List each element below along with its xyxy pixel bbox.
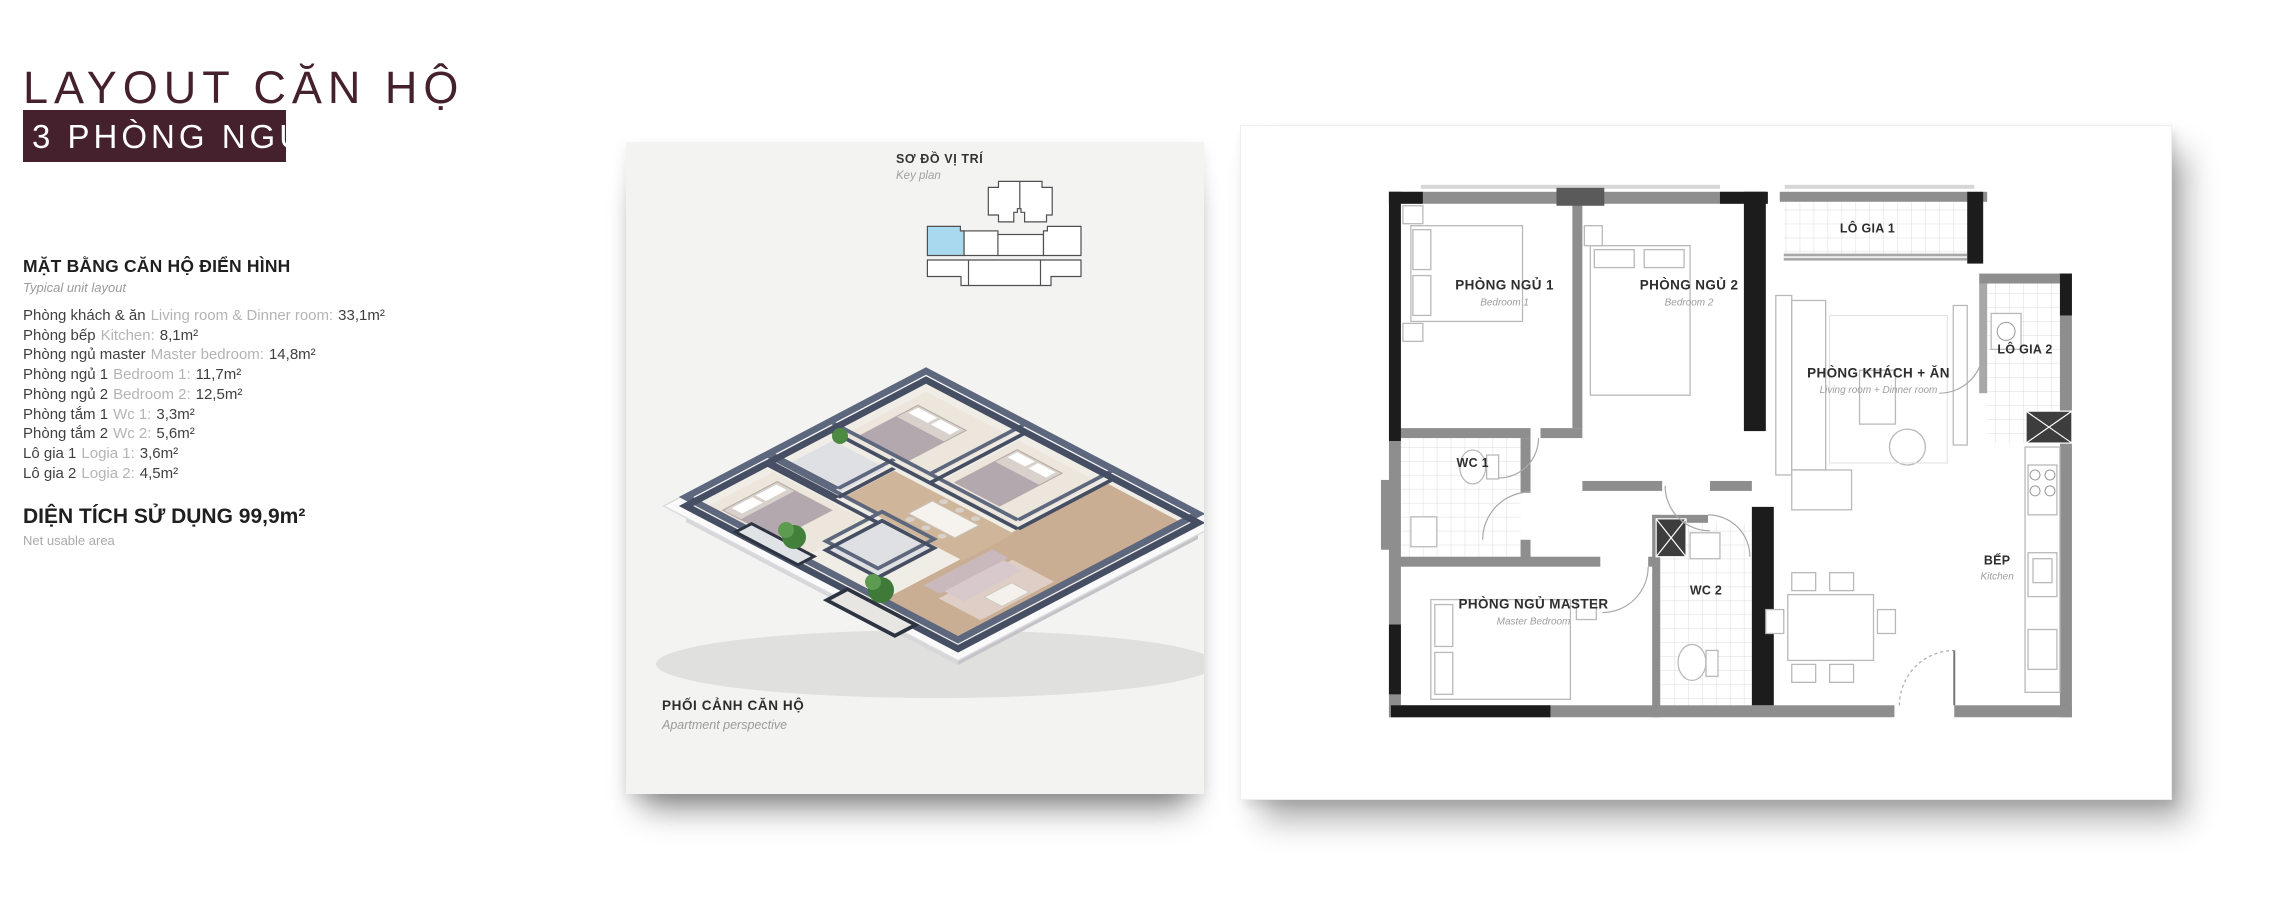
room-area-list: Phòng khách & ănLiving room & Dinner roo… (23, 306, 385, 483)
label-logia1: LÔ GIA 1 (1840, 221, 1895, 236)
room-name-en: Kitchen: (101, 327, 155, 344)
room-name-vi: Lô gia 2 (23, 465, 76, 482)
list-item: Phòng tắm 1Wc 1:3,3m² (23, 405, 385, 425)
list-item: Phòng ngủ masterMaster bedroom:14,8m² (23, 345, 385, 365)
room-name-en: Logia 2: (81, 465, 134, 482)
keyplan-diagram (922, 170, 1102, 302)
room-name-en: Bedroom 1: (113, 366, 191, 383)
room-name-vi: Phòng ngủ 1 (23, 366, 108, 383)
label-living: PHÒNG KHÁCH + ĂN (1807, 365, 1950, 380)
room-area-value: 12,5m² (196, 386, 243, 403)
room-name-vi: Phòng ngủ 2 (23, 386, 108, 403)
room-name-vi: Phòng tắm 1 (23, 406, 108, 423)
list-item: Lô gia 2Logia 2:4,5m² (23, 464, 385, 484)
perspective-caption-subtitle: Apartment perspective (662, 718, 787, 732)
room-name-en: Bedroom 2: (113, 386, 191, 403)
list-item: Lô gia 1Logia 1:3,6m² (23, 444, 385, 464)
room-area-value: 3,3m² (156, 406, 194, 423)
page: LAYOUT CĂN HỘ 3 PHÒNG NGỦ MẶT BẰNG CĂN H… (0, 0, 2279, 900)
total-area-label: DIỆN TÍCH SỬ DỤNG (23, 505, 233, 528)
section-subheading: Typical unit layout (23, 280, 126, 295)
floorplan-panel: PHÒNG NGỦ 1 Bedroom 1 PHÒNG NGỦ 2 Bedroo… (1240, 125, 2172, 800)
room-area-value: 3,6m² (140, 445, 178, 462)
room-name-en: Master bedroom: (151, 346, 264, 363)
room-name-vi: Phòng tắm 2 (23, 425, 108, 442)
keyplan-title: SƠ ĐỒ VỊ TRÍ (896, 152, 983, 166)
room-name-en: Logia 1: (81, 445, 134, 462)
room-area-value: 14,8m² (269, 346, 316, 363)
room-area-value: 11,7m² (196, 366, 242, 383)
list-item: Phòng ngủ 2Bedroom 2:12,5m² (23, 385, 385, 405)
room-name-vi: Phòng bếp (23, 327, 96, 344)
total-area-subtitle: Net usable area (23, 533, 115, 548)
room-name-en: Living room & Dinner room: (151, 307, 334, 324)
list-item: Phòng ngủ 1Bedroom 1:11,7m² (23, 365, 385, 385)
perspective-card: SƠ ĐỒ VỊ TRÍ Key plan PHỐI CẢNH CĂN HỘ A… (626, 142, 1204, 794)
room-name-vi: Phòng khách & ăn (23, 307, 146, 324)
room-area-value: 4,5m² (140, 465, 178, 482)
apartment-3d-perspective (626, 142, 1204, 794)
list-item: Phòng tắm 2Wc 2:5,6m² (23, 424, 385, 444)
room-name-vi: Phòng ngủ master (23, 346, 146, 363)
label-bedroom1: PHÒNG NGỦ 1 (1455, 278, 1554, 293)
page-subtitle-badge: 3 PHÒNG NGỦ (23, 110, 286, 162)
label-bedroom2: PHÒNG NGỦ 2 (1640, 278, 1739, 293)
room-name-en: Wc 1: (113, 406, 151, 423)
label-wc1: WC 1 (1457, 456, 1489, 470)
page-title: LAYOUT CĂN HỘ (23, 62, 464, 114)
section-heading: MẶT BẰNG CĂN HỘ ĐIỂN HÌNH (23, 256, 291, 277)
room-name-vi: Lô gia 1 (23, 445, 76, 462)
list-item: Phòng bếpKitchen:8,1m² (23, 326, 385, 346)
keyplan-highlighted-unit (927, 226, 964, 255)
room-area-value: 8,1m² (160, 327, 198, 344)
floorplan-drawing: PHÒNG NGỦ 1 Bedroom 1 PHÒNG NGỦ 2 Bedroo… (1241, 126, 2171, 799)
total-area-value: 99,9m² (239, 505, 306, 528)
label-bedroom2-sub: Bedroom 2 (1665, 297, 1714, 308)
perspective-caption-title: PHỐI CẢNH CĂN HỘ (662, 698, 804, 713)
total-area: DIỆN TÍCH SỬ DỤNG 99,9m² (23, 505, 305, 529)
label-logia2: LÔ GIA 2 (1997, 341, 2052, 356)
label-wc2: WC 2 (1690, 584, 1722, 598)
label-bedroom1-sub: Bedroom 1 (1480, 297, 1529, 308)
list-item: Phòng khách & ănLiving room & Dinner roo… (23, 306, 385, 326)
room-area-value: 5,6m² (156, 425, 194, 442)
label-master: PHÒNG NGỦ MASTER (1459, 597, 1609, 612)
room-name-en: Wc 2: (113, 425, 151, 442)
room-area-value: 33,1m² (338, 307, 385, 324)
label-living-sub: Living room + Dinner room (1820, 385, 1938, 396)
label-kitchen-sub: Kitchen (1981, 572, 2015, 583)
label-master-sub: Master Bedroom (1497, 617, 1571, 628)
label-kitchen: BẾP (1984, 553, 2011, 568)
